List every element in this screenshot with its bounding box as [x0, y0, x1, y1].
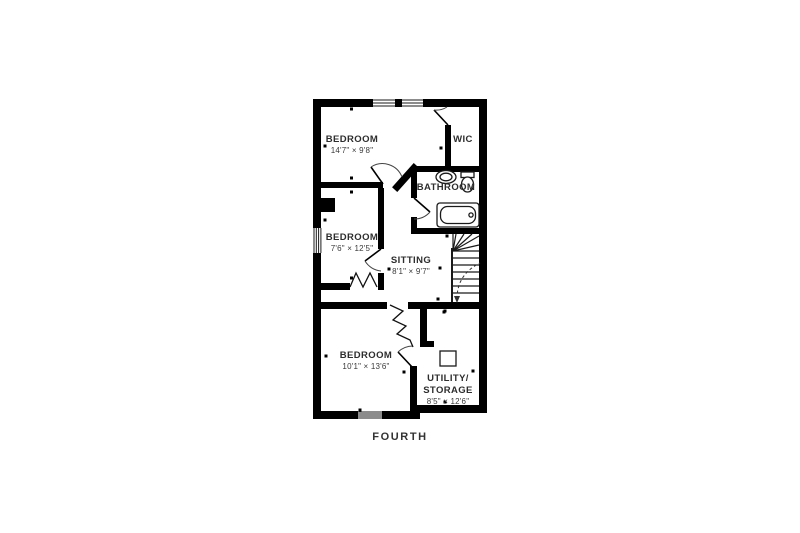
bathtub-icon: [437, 203, 479, 227]
window-left-icon: [313, 228, 321, 253]
bathroom-label: BATHROOM: [417, 182, 475, 193]
bedroom-bottom-dims: 10'1" × 13'6": [342, 362, 389, 371]
sitting-dims: 8'1" × 9'7": [392, 267, 430, 276]
floor-plan-drawing: BEDROOM 14'7" × 9'8" WIC BATHROOM BEDROO…: [0, 0, 800, 533]
sitting-label: SITTING: [391, 255, 431, 266]
wic-door-icon: [434, 107, 448, 125]
folding-door-icon: [390, 305, 413, 347]
bedroom-mid-dims: 7'6" × 12'5": [331, 244, 374, 253]
floor-plan-page: BEDROOM 14'7" × 9'8" WIC BATHROOM BEDROO…: [0, 0, 800, 533]
bedroom-bottom-door-icon: [398, 346, 413, 368]
bedroom-top-dims: 14'7" × 9'8": [331, 146, 374, 155]
bedroom-top-door-icon: [371, 164, 402, 184]
utility-label-line2: STORAGE: [423, 385, 473, 396]
window-bottom-icon: [358, 411, 382, 419]
utility-dims: 8'5" × 12'6": [427, 397, 470, 406]
roof-hatch-icon: [440, 351, 456, 366]
bedroom-bottom-label: BEDROOM: [340, 350, 392, 361]
staircase-icon: [451, 234, 480, 303]
bedroom-top-label: BEDROOM: [326, 134, 378, 145]
wic-label: WIC: [453, 134, 473, 145]
bedroom-mid-label: BEDROOM: [326, 232, 378, 243]
window-top-icon: [373, 99, 423, 107]
folding-door-icon: [350, 273, 377, 287]
bathroom-door-icon: [414, 198, 430, 219]
floor-title: FOURTH: [372, 431, 427, 443]
utility-label-line1: UTILITY/: [427, 373, 469, 384]
stair-direction-arrow: [454, 296, 460, 303]
